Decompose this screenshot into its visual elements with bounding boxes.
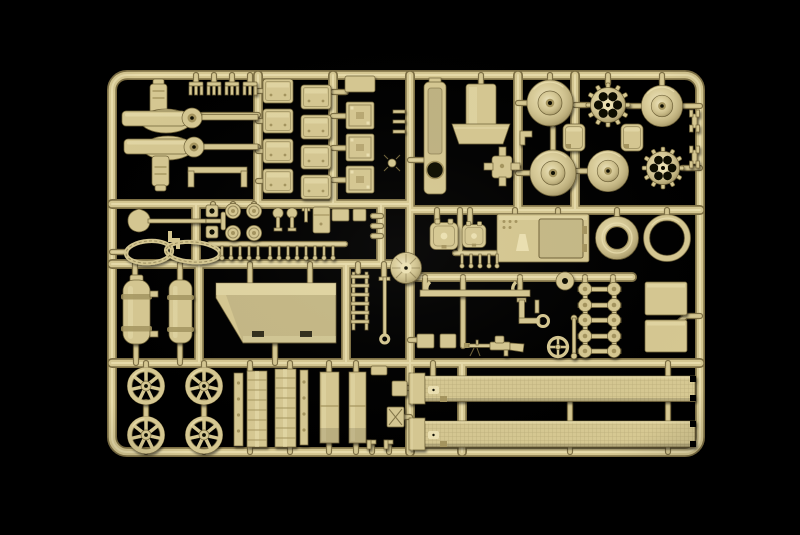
vignette-overlay [0,0,800,530]
sprue-illustration [0,0,800,530]
sprue-photo: Photograph of a tan injection-molded pla… [0,0,800,530]
